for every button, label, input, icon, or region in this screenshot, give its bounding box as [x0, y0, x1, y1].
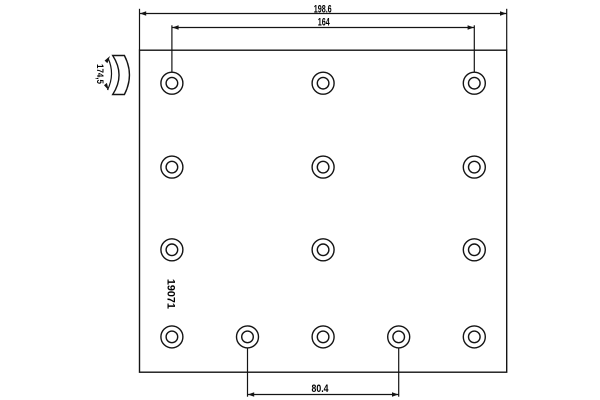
svg-text:164: 164	[318, 17, 330, 29]
svg-text:198.6: 198.6	[314, 3, 332, 15]
svg-text:19071: 19071	[165, 279, 177, 309]
svg-text:174,5: 174,5	[95, 64, 105, 84]
svg-text:80.4: 80.4	[312, 383, 330, 395]
